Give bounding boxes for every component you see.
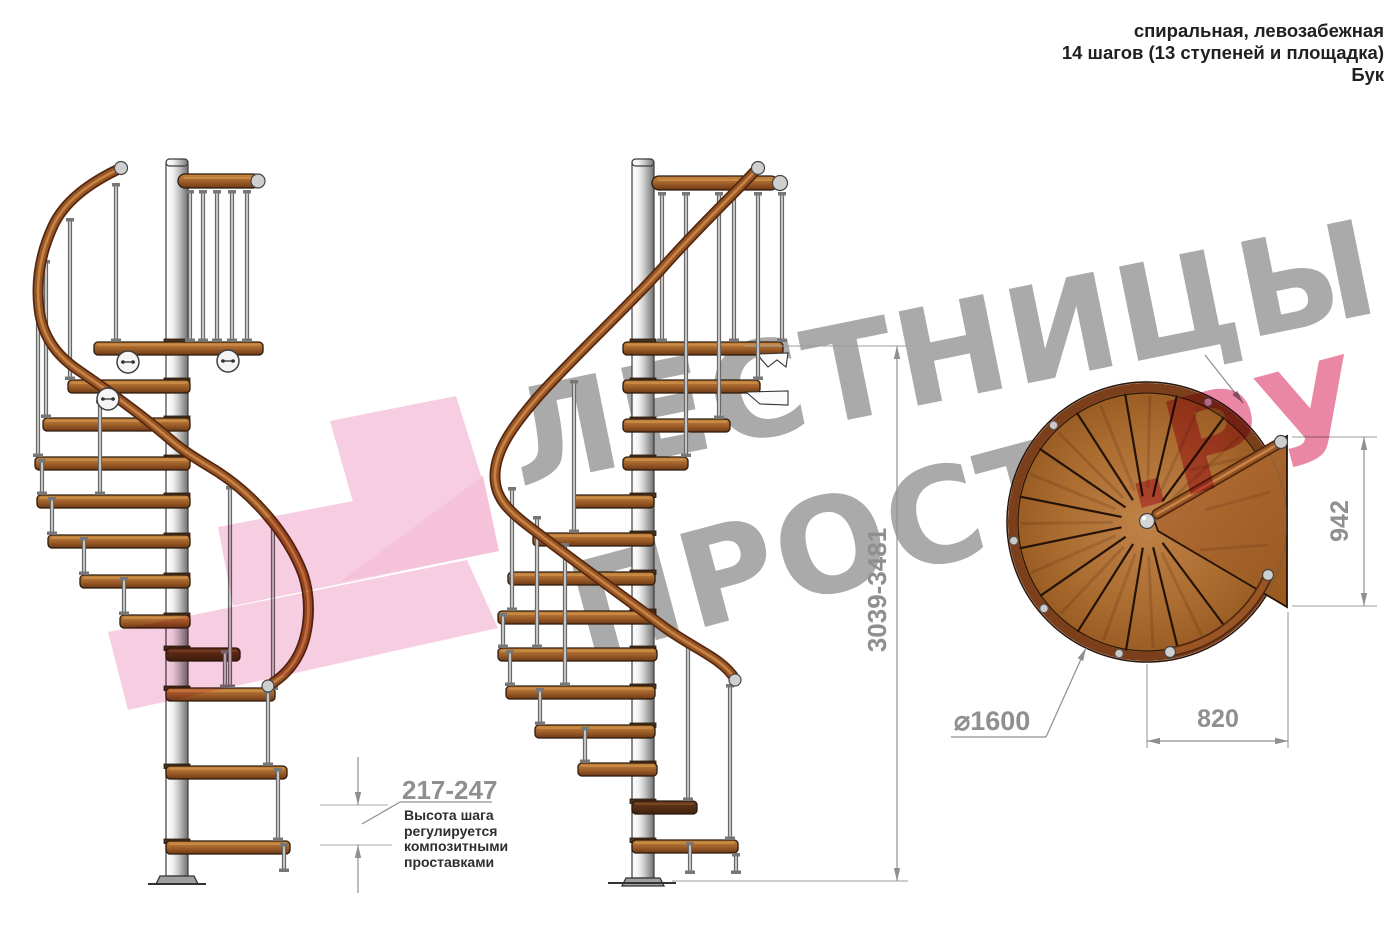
drawing-page: { "title": { "line1": "спиральная, левоз… xyxy=(0,0,1400,944)
title-type: спиральная, левозабежная xyxy=(1062,20,1384,42)
step-height-note: Высота шага регулируется композитными пр… xyxy=(404,808,508,870)
note-line: регулируется xyxy=(404,824,508,840)
note-line: композитными xyxy=(404,839,508,855)
title-steps: 14 шагов (13 ступеней и площадка) xyxy=(1062,42,1384,64)
note-line: Высота шага xyxy=(404,808,508,824)
note-line: проставками xyxy=(404,855,508,871)
title-material: Бук xyxy=(1062,64,1384,86)
title-block: спиральная, левозабежная 14 шагов (13 ст… xyxy=(1062,20,1384,86)
